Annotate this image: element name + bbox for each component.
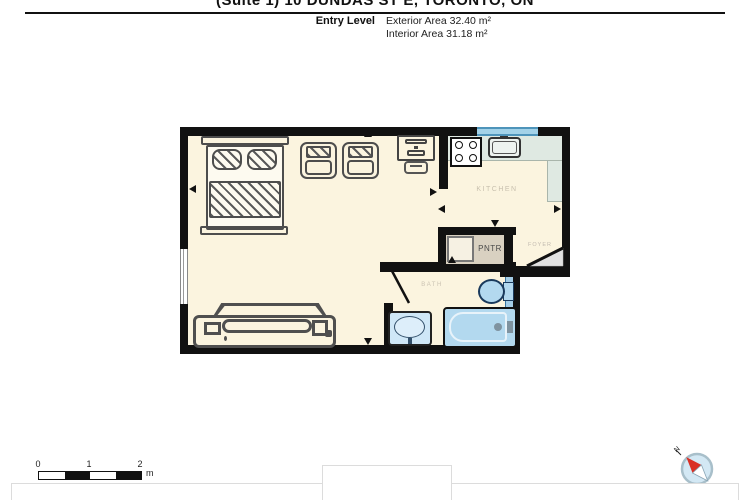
bathtub-faucet [507, 321, 513, 333]
label-bath: BATH [412, 282, 452, 288]
bed-headboard [201, 136, 289, 145]
wall-right [562, 127, 570, 277]
armchair-1-seat [305, 160, 332, 175]
vanity-faucet [408, 338, 412, 344]
stove-burner-1 [455, 141, 463, 149]
desk-chair [404, 161, 428, 174]
kitchen-faucet [500, 136, 508, 139]
armchair-1-cushion [306, 146, 331, 158]
compass-circle [682, 454, 712, 484]
sofa-arm-left [204, 322, 221, 335]
page-title: (Suite 1) 10 DUNDAS ST E, TORONTO, ON [0, 0, 750, 8]
kitchen-counter-right [547, 161, 562, 202]
page-title-text: (Suite 1) 10 DUNDAS ST E, TORONTO, ON [0, 0, 750, 8]
scale-seg [116, 472, 142, 479]
sofa-arm-right-detail [325, 330, 332, 337]
label-foyer: FOYER [521, 242, 559, 248]
scale-seg [90, 472, 116, 479]
scale-seg [39, 472, 65, 479]
stove [450, 137, 482, 167]
floor-plan-page: (Suite 1) 10 DUNDAS ST E, TORONTO, ON En… [0, 0, 750, 500]
label-kitchen: KITCHEN [467, 186, 527, 193]
scale-bar [38, 471, 142, 480]
compass-needle-north [682, 453, 702, 473]
bed-pillow-right [247, 149, 277, 170]
wall-left-upper [180, 127, 188, 249]
scale-tick-1: 1 [83, 459, 95, 469]
stove-burner-2 [469, 141, 477, 149]
sofa-dot [224, 336, 227, 341]
exterior-area: Exterior Area 32.40 m² [386, 15, 491, 27]
window-kitchen [477, 127, 538, 136]
desk-monitor-stand [414, 146, 418, 149]
scale-tick-2: 2 [134, 459, 146, 469]
toilet [478, 279, 505, 304]
level-label: Entry Level [270, 15, 375, 27]
label-pantry: PNTR [470, 244, 510, 253]
compass-needle-south [693, 465, 713, 485]
stove-burner-3 [455, 154, 463, 162]
compass-north-tick [676, 450, 681, 455]
wall-kitchen-partition [439, 136, 448, 189]
vanity-basin [394, 316, 425, 338]
compass: N [673, 445, 712, 484]
desk-monitor [405, 139, 427, 144]
desk-keyboard [407, 150, 425, 156]
desk-chair-detail [410, 165, 422, 167]
compass-north-label: N [673, 445, 681, 454]
interior-area: Interior Area 31.18 m² [386, 28, 488, 40]
bed-footboard [200, 226, 288, 235]
armchair-2-seat [347, 160, 374, 175]
bed-pillow-left [212, 149, 242, 170]
kitchen-sink-basin [492, 141, 517, 154]
window-left [180, 249, 188, 304]
scale-seg [65, 472, 91, 479]
bed-blanket [209, 181, 281, 218]
scale-tick-0: 0 [32, 459, 44, 469]
scale-unit: m [146, 468, 154, 478]
footer-tab [322, 465, 452, 500]
armchair-2-cushion [348, 146, 373, 158]
stove-burner-4 [469, 154, 477, 162]
sofa-cushion [222, 319, 312, 333]
header-divider [25, 12, 725, 14]
bathtub-drain [494, 323, 502, 331]
window-left-mullion [183, 249, 184, 304]
